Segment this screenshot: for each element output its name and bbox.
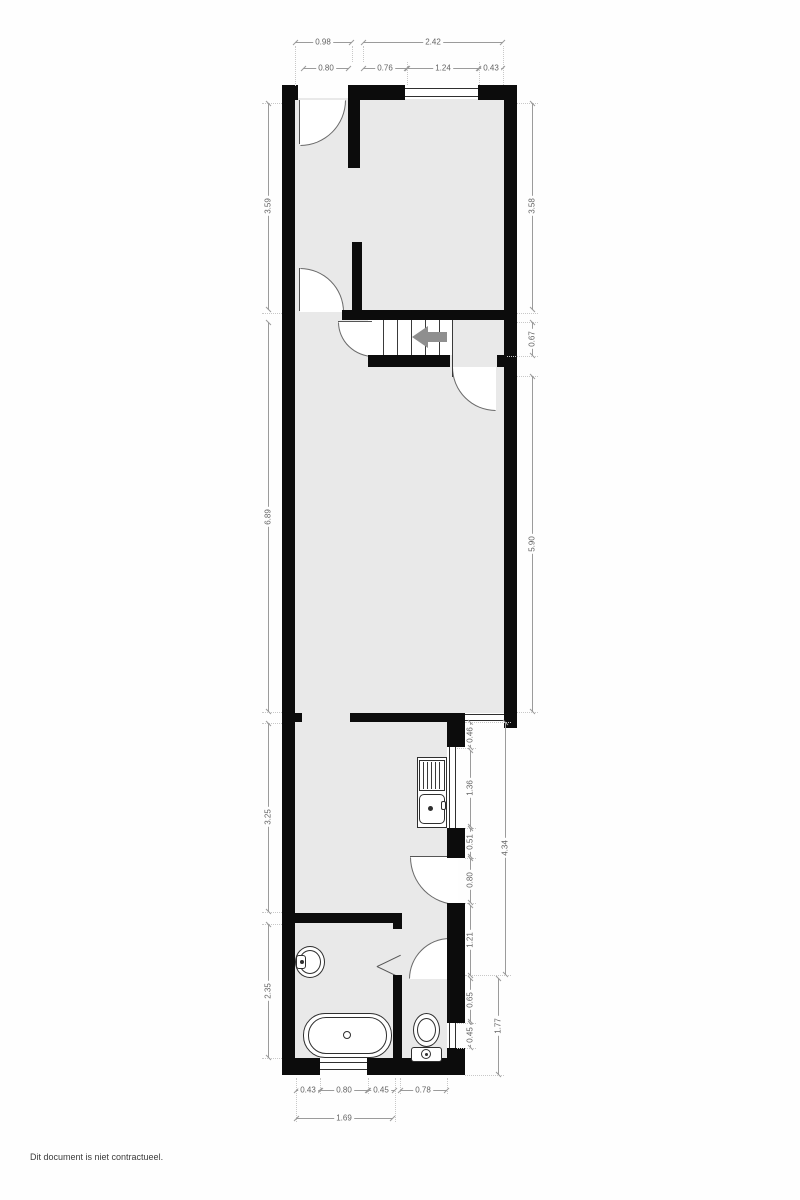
wall-kitchen-bath-divider bbox=[282, 913, 395, 923]
wall-kitchen-right-stub bbox=[447, 713, 465, 747]
sink-drain-dot bbox=[428, 806, 433, 811]
dim-label-right-wc-total: 1.77 bbox=[494, 1016, 503, 1036]
window-top-glazing bbox=[405, 88, 478, 89]
extension-line bbox=[447, 1078, 448, 1094]
extension-line bbox=[320, 1078, 321, 1094]
floor-plan-canvas: 0.98 2.42 0.80 0.76 1.24 0.43 3.59 6.89 … bbox=[0, 0, 800, 1200]
footer-disclaimer: Dit document is niet contractueel. bbox=[30, 1152, 163, 1162]
dim-label-right-room-top: 3.58 bbox=[528, 196, 537, 216]
dim-label-right-wc-window: 0.45 bbox=[466, 1025, 475, 1045]
extension-line bbox=[262, 924, 282, 925]
drainer-groove bbox=[423, 762, 424, 789]
dim-label-bottom-wall-right: 0.45 bbox=[371, 1086, 391, 1095]
wall-mainroom-bottom-left bbox=[282, 713, 302, 722]
extension-line bbox=[262, 1058, 282, 1059]
dim-label-top-wall-mid: 0.76 bbox=[375, 64, 395, 73]
window-kitchen-glazing bbox=[455, 747, 456, 828]
stair-direction-arrow-icon bbox=[412, 326, 428, 348]
drainer-groove bbox=[431, 762, 432, 789]
wall-top-segment bbox=[282, 85, 298, 100]
extension-line bbox=[368, 1078, 369, 1094]
dim-label-bottom-wc: 0.78 bbox=[413, 1086, 433, 1095]
extension-line bbox=[262, 912, 282, 913]
window-top-glazing bbox=[405, 96, 478, 97]
wall-divider-endcap bbox=[393, 913, 402, 929]
dim-label-bottom-wall-left: 0.43 bbox=[298, 1086, 318, 1095]
toilet-bowl-inner bbox=[417, 1018, 436, 1042]
dim-label-top-door: 0.80 bbox=[316, 64, 336, 73]
stair-direction-arrow-shaft bbox=[428, 332, 447, 342]
drainer-groove bbox=[427, 762, 428, 789]
bathtub-drain bbox=[343, 1031, 351, 1039]
extension-line bbox=[262, 313, 282, 314]
window-kitchen-glazing bbox=[449, 747, 450, 828]
window-mainroom-glazing bbox=[465, 714, 504, 715]
extension-line bbox=[517, 322, 538, 323]
entry-door-leaf bbox=[299, 100, 300, 144]
wall-bottom-left bbox=[282, 1058, 320, 1075]
top-room-door-leaf bbox=[299, 268, 300, 311]
dim-label-right-kitchen-window: 1.36 bbox=[466, 778, 475, 798]
wall-top-room-partition bbox=[352, 242, 362, 313]
floor-doorway-2 bbox=[302, 713, 350, 722]
dim-label-right-landing: 0.67 bbox=[528, 329, 537, 349]
dim-label-left-kitchen: 3.25 bbox=[264, 807, 273, 827]
dim-label-bottom-bath-total: 1.69 bbox=[334, 1114, 354, 1123]
window-bath-glazing bbox=[320, 1069, 367, 1070]
extension-line bbox=[517, 313, 538, 314]
window-wc-glazing bbox=[455, 1023, 456, 1048]
dim-label-right-hall: 1.21 bbox=[466, 930, 475, 950]
washbasin-dot bbox=[300, 960, 304, 964]
extension-line bbox=[296, 1078, 297, 1122]
wall-wc-divider bbox=[393, 975, 402, 1058]
stair-tread bbox=[397, 320, 398, 355]
wall-lower-right bbox=[447, 903, 465, 1023]
extension-line bbox=[363, 46, 364, 62]
stair-tread bbox=[383, 320, 384, 355]
dim-label-right-stub: 0.46 bbox=[466, 725, 475, 745]
window-mainroom-glazing bbox=[465, 720, 504, 721]
wall-left-exterior bbox=[282, 85, 295, 1075]
toilet-flush-dot bbox=[425, 1053, 428, 1056]
dim-label-top-right-total: 2.42 bbox=[423, 38, 443, 47]
wall-kitchen-right-pier bbox=[447, 828, 465, 858]
stairwell-edge-line bbox=[452, 320, 453, 377]
dim-label-left-bathroom: 2.35 bbox=[264, 981, 273, 1001]
drainer-groove bbox=[439, 762, 440, 789]
stair-hall-door-leaf bbox=[338, 321, 372, 322]
dim-label-left-room-top: 3.59 bbox=[264, 196, 273, 216]
dim-label-top-window: 1.24 bbox=[433, 64, 453, 73]
extension-line bbox=[517, 103, 538, 104]
sink-faucet bbox=[441, 801, 446, 810]
dim-label-left-room-main: 6.89 bbox=[264, 507, 273, 527]
extension-line bbox=[352, 46, 353, 62]
extension-line bbox=[400, 1078, 401, 1094]
extension-line bbox=[295, 46, 296, 86]
dim-label-top-left-total: 0.98 bbox=[313, 38, 333, 47]
wall-entry-partition bbox=[348, 85, 360, 168]
extension-line bbox=[262, 103, 282, 104]
extension-line bbox=[262, 712, 282, 713]
window-bath-glazing bbox=[320, 1062, 367, 1063]
drainer-groove bbox=[435, 762, 436, 789]
dim-label-right-wc-wall: 0.65 bbox=[466, 990, 475, 1010]
wall-right-exterior bbox=[504, 85, 517, 728]
dim-label-right-pier: 0.51 bbox=[466, 832, 475, 852]
extension-line bbox=[517, 376, 538, 377]
dim-label-right-kitchen-door: 0.80 bbox=[466, 870, 475, 890]
wall-stair-bottom bbox=[368, 355, 450, 367]
dim-label-bottom-window: 0.80 bbox=[334, 1086, 354, 1095]
wall-stair-hall-top bbox=[342, 310, 504, 320]
dim-label-top-wall-right: 0.43 bbox=[481, 64, 501, 73]
dim-label-right-room-main: 5.90 bbox=[528, 534, 537, 554]
dim-label-right-lower-total: 4.34 bbox=[501, 838, 510, 858]
extension-line bbox=[262, 723, 282, 724]
window-wc-glazing bbox=[449, 1023, 450, 1048]
